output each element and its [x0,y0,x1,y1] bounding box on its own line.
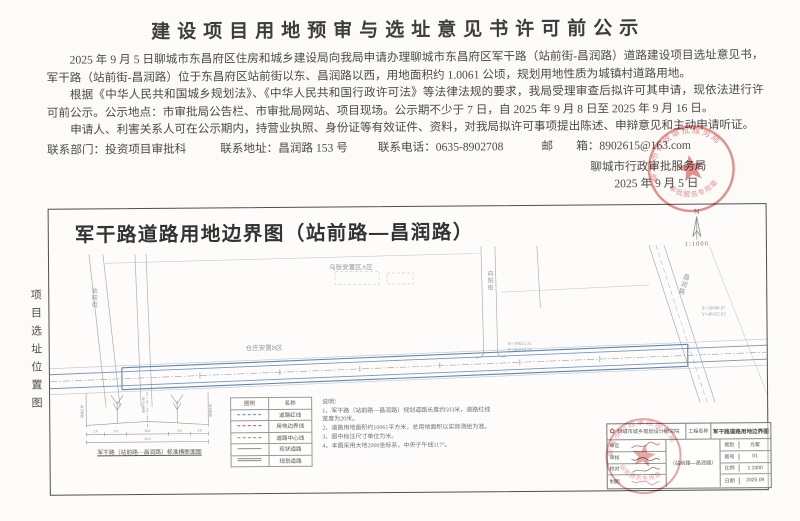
cross-section-caption: 军干路（站前路—昌润路）标准横断面图 [72,446,226,456]
sheet-info-label: 比例 [721,465,740,472]
map-label-area-b: 仓庄安置B区 [246,342,283,352]
map-label-area-a: 乌张安置区A区 [329,261,373,271]
map-legend: 图例 名称 道路红线 用地边界线 道路中心线 现状道路 [230,397,313,468]
approval-row: 制图 [608,475,666,487]
legend-symbol-redline-icon [238,414,262,415]
redline-label-right: 道路红线 [208,403,213,417]
approval-label: 审核 [610,454,620,461]
dim-total: 20.0 [144,437,151,441]
contact-address: 联系地址：昌润路 153 号 [220,139,348,158]
sheet-info-value: 01 [740,453,771,459]
map-title: 军干路道路用地边界图（站前路—昌润路） [75,215,474,247]
notice-body: 2025 年 9 月 5 日聊城市东昌府区住房和城乡建设局向我局申请办理聊城市东… [46,46,764,197]
dim-2: 3.0 [113,429,118,433]
note-item: 2、道路用地面积约10061平方米，总用地面积以实际测绘为准。 [322,423,492,433]
project-name-value: 军干路道路用地边界图 [711,423,770,438]
note-item: 1、军干路（站前路—昌润路）规划道路长度约503米，道路红线宽度为20米。 [322,406,492,425]
contact-department: 联系部门：投资项目审批科 [47,141,186,160]
legend-row: 用地边界线 [231,420,312,432]
dim-5: 2.0 [197,429,202,433]
legend-name: 现状道路 [269,443,312,455]
project-sub-name: （站前路—昌润路） [670,460,717,467]
coord-1-x: X=39652.31 [508,342,532,348]
institute-name: 聊城市城乡规划设计研究院 [617,428,679,435]
legend-symbol-boundary-icon [238,426,262,427]
signature-scribble [630,464,662,474]
signature-scribble [630,453,662,463]
contact-phone: 联系电话：0635-8902708 [378,138,504,157]
sheet-info-row: 图号 01 [721,451,771,463]
north-compass: N 1:1000 [675,208,719,247]
signature-scribble [629,441,661,451]
approval-label: 校对 [610,466,620,473]
compass-n-label: N [675,208,719,215]
road-cross-section: 2.0 3.0 10.0 3.0 2.0 20.0 道路红线 道路中心线 道路红… [72,386,227,456]
design-institute-cell: ✿ 聊城市城乡规划设计研究院 [607,424,686,440]
signature-scribble [630,476,662,486]
approval-row: 校对 [608,463,666,475]
approval-rows: 审定 审核 校对 [607,440,666,487]
cross-section-drawing: 2.0 3.0 10.0 3.0 2.0 20.0 道路红线 道路中心线 道路红… [72,386,226,447]
redline-label-left: 道路红线 [79,404,84,418]
legend-symbol-planned-road-icon [238,458,262,464]
sheet-info-rows: 图别 方案 图号 01 比例 1:1000 日期 2025.09 [720,439,770,486]
legend-row: 现状道路 [231,443,312,455]
dim-3: 10.0 [144,429,151,433]
legend-name: 道路红线 [269,409,312,421]
legend-row: 道路中心线 [231,432,312,444]
legend-header-symbol: 图例 [231,398,269,410]
sheet-info-value: 2025.09 [740,477,771,483]
approval-label: 制图 [610,478,620,485]
dim-4: 3.0 [177,429,182,433]
legend-row: 道路红线 [231,409,312,421]
map-label-street-left: 站前街 [89,287,98,308]
dim-1: 2.0 [93,429,98,433]
approval-label: 审定 [609,442,619,449]
project-sub-cell: （站前路—昌润路） [666,439,720,486]
coord-2-y: Y=40452.63 [701,312,725,318]
legend-symbol-existing-road-icon [238,449,262,450]
north-arrow-icon [689,216,705,240]
sheet-info-label: 图别 [720,441,739,448]
coord-2-x: X=39688.07 [701,306,725,312]
legend-row: 规划道路 [231,455,312,467]
institute-logo-icon: ✿ [609,428,615,435]
sheet-info-label: 日期 [721,477,740,484]
sheet-info-value: 1:1000 [740,465,771,471]
drawing-title-block: ✿ 聊城市城乡规划设计研究院 工程名称 军干路道路用地边界图 审定 审核 [606,422,772,489]
road-plan-drawing [49,244,767,410]
approval-row: 审核 [608,452,666,464]
centerline-label: 道路中心线 [141,396,146,413]
page-title: 建设项目用地预审与选址意见书许可前公示 [0,12,798,45]
notice-paragraph-2: 根据《中华人民共和国城乡规划法》、《中华人民共和国行政许可法》等法律法规的要求，… [47,81,764,122]
note-item: 4、本图采用大地2000坐标系，中央子午线117°。 [322,441,492,451]
legend-name: 道路中心线 [269,432,312,444]
map-coordinate-label-1: X=39652.31 Y=40218.56 [508,342,532,353]
side-vertical-label: 项目选址位置图 [27,289,44,415]
legend-name: 规划道路 [269,455,312,467]
sheet-info-value: 方案 [739,441,770,448]
map-coordinate-label-2: X=39688.07 Y=40452.63 [701,306,725,317]
legend-name: 用地边界线 [269,420,312,432]
site-map-panel: 军干路道路用地边界图（站前路—昌润路） N 1:1000 [48,203,769,496]
legend-header-name: 名称 [268,397,311,409]
approval-row: 审定 [607,440,665,452]
legend-symbol-centerline-icon [238,437,262,438]
notice-paragraph-1: 2025 年 9 月 5 日聊城市东昌府区住房和城乡建设局向我局申请办理聊城市东… [46,46,763,87]
map-notes: 说明： 1、军干路（站前路—昌润路）规划道路长度约503米，道路红线宽度为20米… [322,397,492,451]
sheet-info-row: 图别 方案 [720,439,770,451]
project-name-label: 工程名称 [686,424,711,439]
contact-email: 邮 箱：8902615@163.com [541,137,691,156]
map-label-street-mid: 向阳街 [485,270,494,291]
coord-1-y: Y=40218.56 [508,348,532,354]
sheet-info-label: 图号 [721,453,740,460]
sheet-info-row: 比例 1:1000 [721,463,771,475]
contact-row: 联系部门：投资项目审批科 联系地址：昌润路 153 号 联系电话：0635-89… [47,136,764,159]
sheet-info-row: 日期 2025.09 [721,474,771,486]
scanned-notice-sheet: 建设项目用地预审与选址意见书许可前公示 2025 年 9 月 5 日聊城市东昌府… [0,0,800,521]
